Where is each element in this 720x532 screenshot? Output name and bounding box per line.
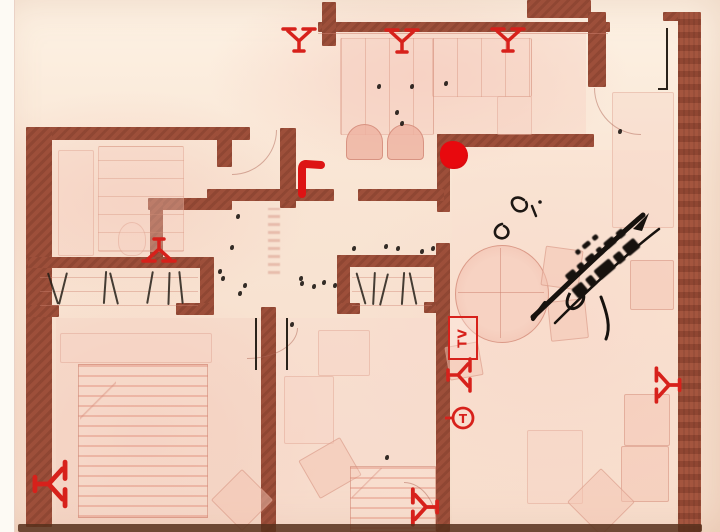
ink-speck	[352, 246, 356, 251]
red-marker-blob	[440, 141, 468, 169]
bed-headboard	[60, 333, 212, 363]
door-swing-line	[286, 318, 288, 370]
wall-segment	[318, 22, 610, 32]
ink-speck	[384, 244, 388, 249]
table-line	[500, 248, 501, 338]
door-swing-line	[666, 28, 668, 90]
antenna-outlet-icon	[442, 356, 476, 394]
ink-speck	[218, 269, 222, 274]
kitchen-sink	[387, 124, 424, 160]
furniture-cabinet	[318, 330, 370, 376]
ink-speck	[243, 283, 247, 288]
door-swing-arc	[594, 88, 641, 135]
ink-speck	[290, 322, 294, 327]
wardrobe-shelf-lines	[352, 270, 432, 306]
kitchen-sink	[346, 124, 383, 160]
radiator-icon	[140, 234, 178, 266]
tv-outlet-icon: TV	[448, 316, 478, 360]
ink-speck	[236, 214, 240, 219]
bathtub	[58, 150, 94, 256]
radiator-icon	[489, 24, 527, 56]
thermostat-icon: T	[444, 402, 478, 434]
ink-speck	[238, 291, 242, 296]
ink-speck	[230, 245, 234, 250]
bed-fold	[80, 380, 116, 422]
ink-speck	[396, 246, 400, 251]
ink-speck	[299, 276, 303, 281]
scan-bottom-edge	[18, 524, 702, 532]
wall-segment	[28, 305, 59, 317]
ink-speck	[300, 281, 304, 286]
door-swing-line	[255, 318, 257, 370]
radiator-icon	[28, 458, 72, 510]
wardrobe-cabinet	[284, 376, 334, 444]
kitchen-appliance	[497, 96, 532, 135]
pencil-annotation	[268, 208, 280, 274]
ink-speck	[385, 455, 389, 460]
ink-speck	[420, 249, 424, 254]
wall-segment	[322, 2, 336, 46]
wall-segment	[527, 0, 591, 18]
radiator-icon	[406, 486, 444, 528]
pencil-guide-line	[318, 33, 608, 34]
radiator-icon	[383, 25, 421, 57]
sofa-cushion	[621, 446, 669, 502]
radiator-icon	[280, 24, 318, 56]
wall-wardrobe-middle	[337, 255, 448, 267]
red-bracket-mark	[297, 158, 325, 200]
tv-label: TV	[456, 328, 470, 347]
wall-segment	[588, 12, 606, 87]
wall-wardrobe-left	[28, 257, 214, 268]
bed-fold	[352, 468, 382, 498]
ink-speck	[431, 246, 435, 251]
handwritten-squiggles	[488, 190, 548, 256]
wardrobe-shelf-lines	[40, 270, 198, 306]
ink-speck	[312, 284, 316, 289]
thermostat-label: T	[459, 412, 468, 426]
ink-speck	[322, 280, 326, 285]
radiator-icon	[651, 365, 685, 405]
page-margin-strip	[0, 0, 15, 532]
door-swing-line	[658, 88, 668, 90]
wall-segment	[358, 189, 444, 201]
ink-speck	[221, 276, 225, 281]
wall-segment	[217, 127, 232, 167]
floor-plan-canvas: TV T	[0, 0, 720, 532]
door-swing-arc	[232, 130, 277, 175]
